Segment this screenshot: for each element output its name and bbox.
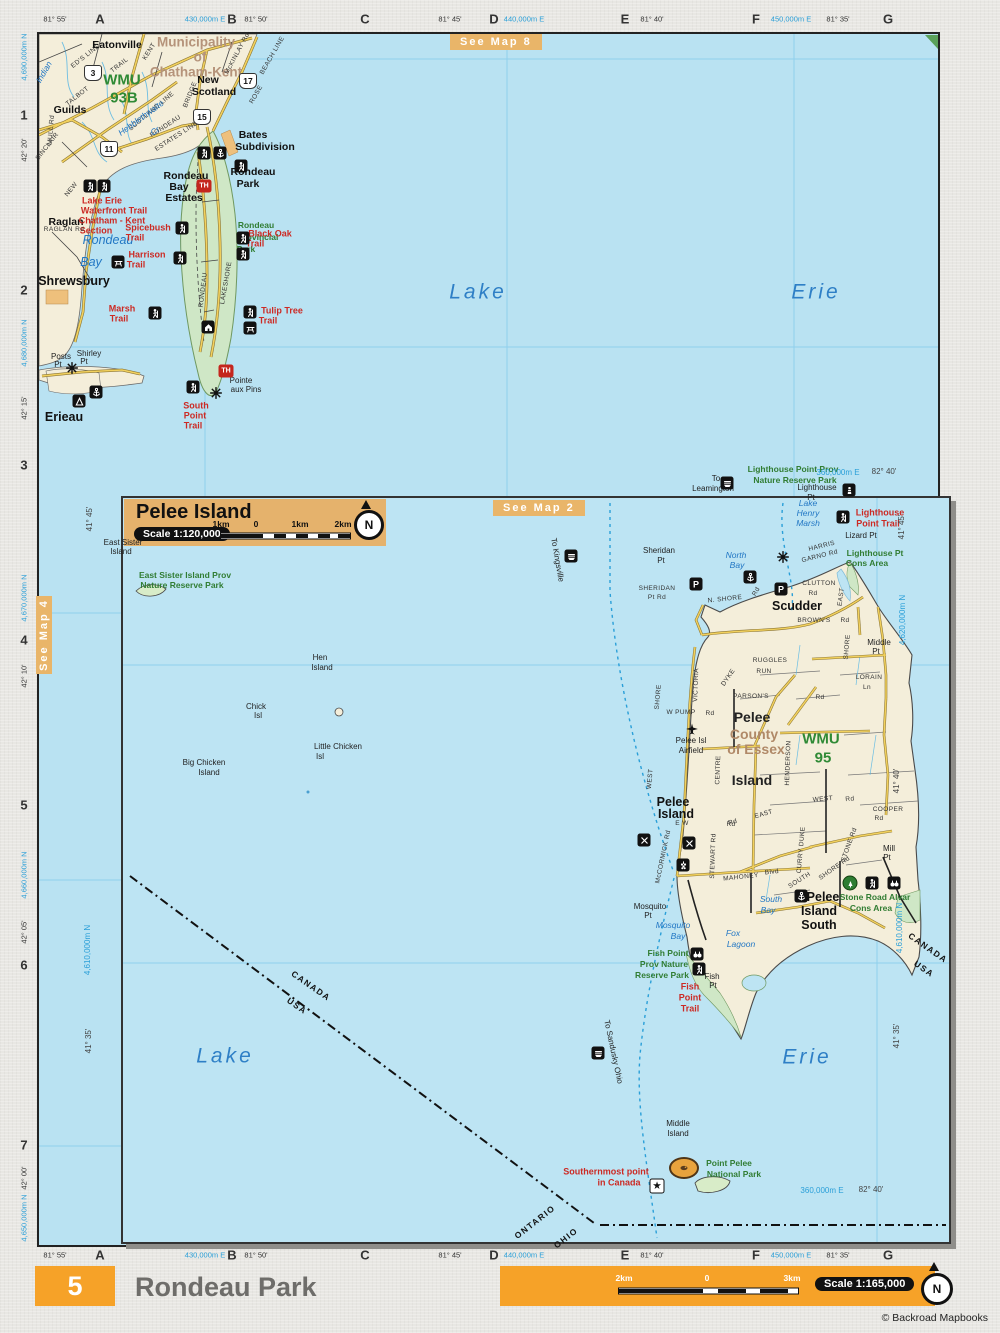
inset-compass-icon: N [354, 510, 384, 540]
grid-ref-column: D [489, 1249, 498, 1262]
grid-ref-column: G [883, 1249, 893, 1262]
grid-ref-coordinate: 4,690,000m N [20, 33, 28, 80]
grid-ref-coordinate: 81° 50' [244, 1251, 267, 1259]
grid-ref-column: B [227, 1249, 236, 1262]
grid-ref-coordinate: 430,000m E [185, 1251, 225, 1259]
scale-tick-label: 2km [615, 1273, 632, 1283]
grid-ref-coordinate: 42° 00' [20, 1166, 28, 1189]
grid-ref-coordinate: 81° 50' [244, 15, 267, 23]
inset-scale-bar [220, 531, 352, 541]
grid-ref-row: 4 [20, 634, 27, 647]
grid-ref-coordinate: 4,680,000m N [20, 319, 28, 366]
footer-scale-bar-panel: 2km03km Scale 1:165,000 [500, 1266, 935, 1306]
grid-ref-row: 6 [20, 959, 27, 972]
grid-ref-column: E [621, 1249, 630, 1262]
map-scale-pill: Scale 1:165,000 [815, 1277, 914, 1291]
pelee-island-inset-map: Pelee Island Scale 1:120,000 1km01km2km … [121, 496, 951, 1244]
grid-ref-coordinate: 81° 45' [438, 15, 461, 23]
grid-ref-coordinate: 450,000m E [771, 15, 811, 23]
see-map-2-link[interactable]: See Map 2 [493, 500, 585, 516]
grid-ref-row: 3 [20, 459, 27, 472]
grid-ref-coordinate: 81° 45' [438, 1251, 461, 1259]
grid-ref-coordinate: 81° 35' [826, 15, 849, 23]
see-map-4-link[interactable]: See Map 4 [36, 596, 52, 674]
footer-compass-icon: N [921, 1273, 953, 1305]
grid-ref-column: F [752, 13, 760, 26]
scale-tick-label: 1km [212, 519, 229, 529]
grid-ref-coordinate: 42° 05' [20, 920, 28, 943]
grid-ref-row: 7 [20, 1139, 27, 1152]
grid-ref-coordinate: 4,660,000m N [20, 851, 28, 898]
scale-tick-label: 3km [783, 1273, 800, 1283]
grid-ref-coordinate: 42° 15' [20, 396, 28, 419]
grid-ref-coordinate: 81° 40' [640, 15, 663, 23]
footer-compass-needle-icon [929, 1262, 939, 1271]
grid-ref-column: E [621, 13, 630, 26]
grid-ref-row: 5 [20, 799, 27, 812]
grid-ref-column: C [360, 1249, 369, 1262]
grid-ref-coordinate: 440,000m E [504, 1251, 544, 1259]
copyright: © Backroad Mapbooks [882, 1312, 988, 1324]
grid-ref-column: B [227, 13, 236, 26]
grid-ref-coordinate: 81° 55' [43, 15, 66, 23]
footer-scale-bar [618, 1286, 800, 1296]
grid-ref-column: A [95, 13, 104, 26]
inset-compass-needle-icon [361, 500, 371, 509]
inset-compass-letter: N [365, 518, 374, 532]
grid-ref-column: F [752, 1249, 760, 1262]
inset-map-canvas [123, 498, 949, 1242]
grid-ref-column: G [883, 13, 893, 26]
see-map-8-link[interactable]: See Map 8 [450, 34, 542, 50]
grid-ref-coordinate: 81° 40' [640, 1251, 663, 1259]
grid-ref-coordinate: 4,670,000m N [20, 574, 28, 621]
grid-ref-row: 1 [20, 109, 27, 122]
grid-ref-coordinate: 430,000m E [185, 15, 225, 23]
page-number: 5 [67, 1271, 82, 1302]
scale-tick-label: 2km [334, 519, 351, 529]
grid-ref-coordinate: 81° 35' [826, 1251, 849, 1259]
scale-tick-label: 0 [254, 519, 259, 529]
inset-title: Pelee Island [136, 501, 252, 524]
page-number-badge: 5 [35, 1266, 115, 1306]
grid-ref-coordinate: 440,000m E [504, 15, 544, 23]
grid-ref-coordinate: 81° 55' [43, 1251, 66, 1259]
scale-tick-label: 1km [291, 519, 308, 529]
inset-scale-pill: Scale 1:120,000 [134, 527, 230, 541]
grid-ref-row: 2 [20, 284, 27, 297]
grid-ref-coordinate: 42° 10' [20, 664, 28, 687]
main-map: Pelee Island Scale 1:120,000 1km01km2km … [37, 32, 940, 1247]
grid-ref-column: A [95, 1249, 104, 1262]
grid-ref-column: D [489, 13, 498, 26]
grid-ref-coordinate: 450,000m E [771, 1251, 811, 1259]
grid-ref-coordinate: 42° 20' [20, 138, 28, 161]
grid-ref-column: C [360, 13, 369, 26]
scale-tick-label: 0 [705, 1273, 710, 1283]
grid-ref-coordinate: 4,650,000m N [20, 1194, 28, 1241]
page-title: Rondeau Park [135, 1272, 317, 1303]
map-page: Pelee Island Scale 1:120,000 1km01km2km … [0, 0, 1000, 1333]
inset-header: Pelee Island Scale 1:120,000 1km01km2km … [124, 499, 386, 546]
footer-compass-letter: N [933, 1282, 942, 1296]
